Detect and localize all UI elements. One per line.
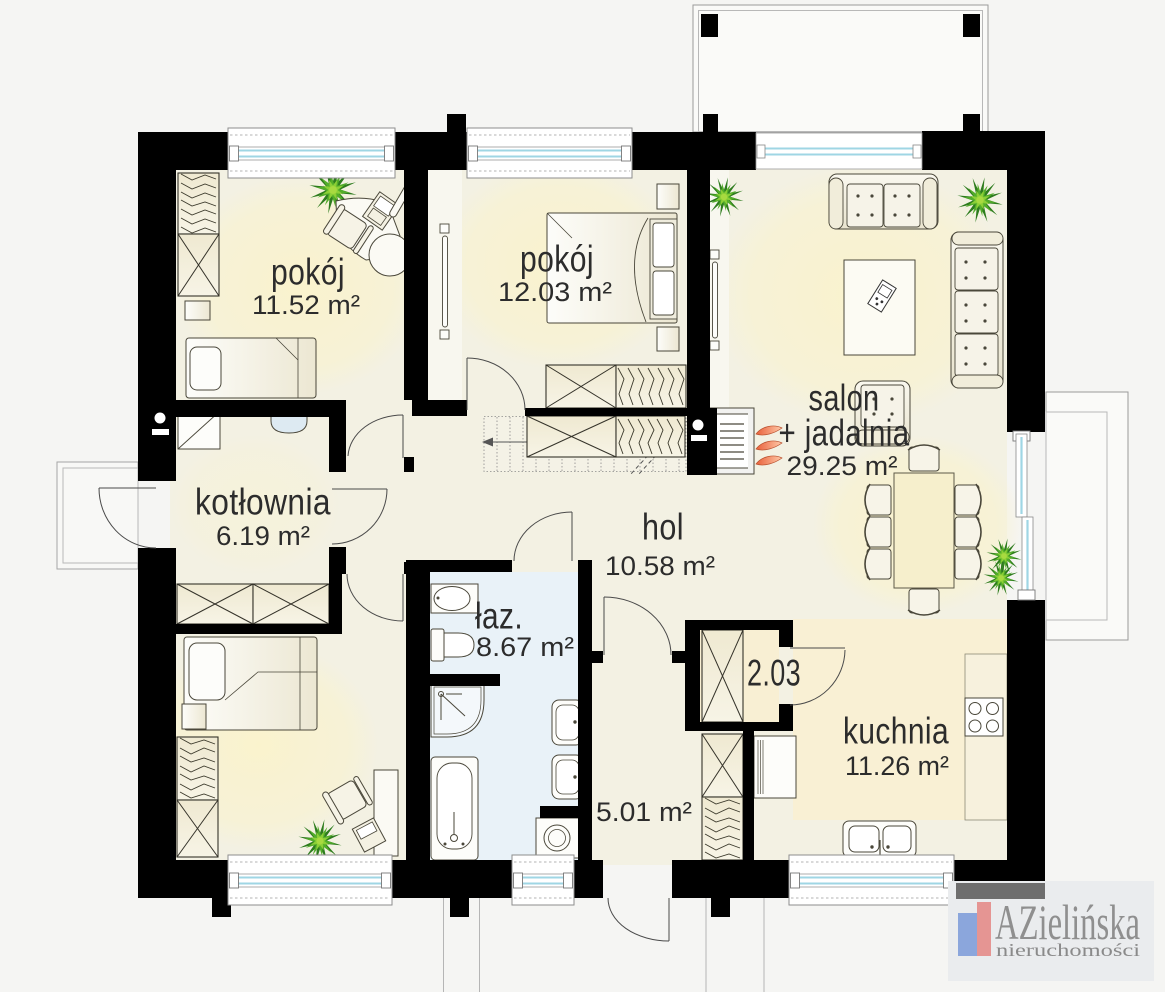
svg-text:kuchnia: kuchnia — [843, 711, 949, 752]
svg-text:pokój: pokój — [520, 239, 594, 280]
svg-text:11.26 m²: 11.26 m² — [845, 751, 949, 781]
svg-text:6.19 m²: 6.19 m² — [216, 521, 310, 551]
svg-text:+ jadalnia: + jadalnia — [779, 413, 910, 454]
svg-text:8.67 m²: 8.67 m² — [476, 632, 574, 662]
svg-text:12.03 m²: 12.03 m² — [498, 277, 612, 307]
svg-text:10.58 m²: 10.58 m² — [605, 551, 715, 581]
svg-text:łaz.: łaz. — [475, 596, 523, 637]
svg-text:hol: hol — [642, 507, 684, 548]
svg-text:kotłownia: kotłownia — [195, 482, 331, 523]
svg-text:pokój: pokój — [271, 252, 345, 293]
svg-text:5.01 m²: 5.01 m² — [596, 797, 692, 827]
svg-text:11.52 m²: 11.52 m² — [252, 290, 360, 320]
svg-text:29.25 m²: 29.25 m² — [787, 451, 898, 481]
svg-text:nieruchomości: nieruchomości — [996, 940, 1140, 960]
svg-text:2.03: 2.03 — [747, 653, 801, 694]
